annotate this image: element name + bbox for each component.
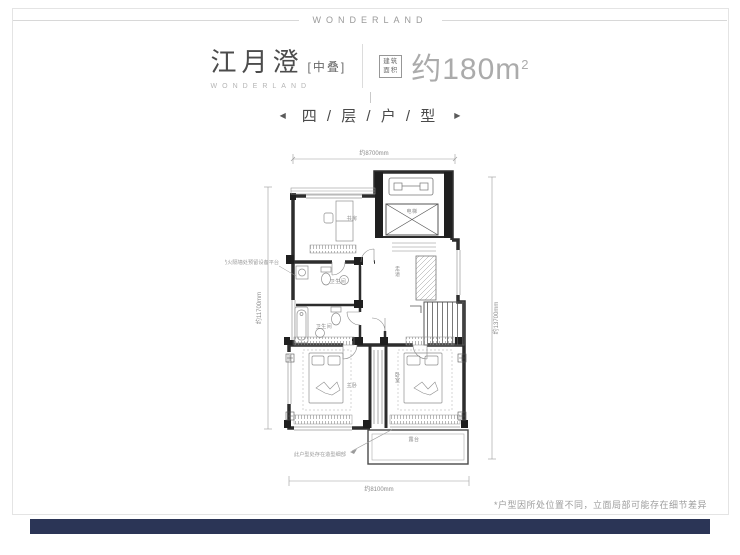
area-number: 约180m [411,53,521,86]
service-areas [392,243,464,345]
banner-line-right [442,20,728,21]
area-value: 约180m2 [411,44,529,88]
project-title-block: 江月澄 [中叠] WONDERLAND [211,42,347,90]
banner-line-left [13,20,299,21]
project-title-suffix: [中叠] [308,58,347,75]
annotation-left: 防火隔墙处预留设备平台 [225,258,279,266]
annotation-bottom-leader [352,429,393,451]
floor-plan: 约8700mm 约11700mm 约13700mm 约8100mm [225,140,510,500]
dim-top: 约8700mm [359,149,388,157]
dim-left: 约11700mm [255,292,263,324]
room-label-terrace: 露台 [408,436,419,443]
top-banner: WONDERLAND [13,15,727,25]
area-badge-line2: 面积 [383,66,398,75]
room-label-bedroom: 卧室 [394,371,400,383]
header-connector-line [370,92,371,103]
section-title-text: 四 / 层 / 户 / 型 [302,105,439,126]
annotation-bottom: 此户型处存在造型细部 [294,450,346,458]
elevator-shaft [386,178,438,235]
header: 江月澄 [中叠] WONDERLAND 建筑 面积 约180m2 [0,42,740,90]
footer-accent-bar [30,519,710,534]
room-label-elevator: 电梯 [406,208,417,215]
terrace [368,430,468,464]
door-openings [332,258,427,349]
dim-bottom: 约8100mm [364,485,393,493]
right-triangle-icon: ▶ [454,111,460,120]
area-badge: 建筑 面积 [379,55,402,78]
room-label-bath-upper: 卫生间 [330,278,347,285]
section-title: ◀ 四 / 层 / 户 / 型 ▶ [0,105,740,126]
header-divider [362,44,363,88]
area-badge-line1: 建筑 [383,57,398,66]
project-subtitle: WONDERLAND [211,83,347,90]
floor-plan-svg: 约8700mm 约11700mm 约13700mm 约8100mm [225,140,510,500]
disclaimer-text: *户型因所处位置不同，立面局部可能存在细节差异 [494,498,707,511]
left-triangle-icon: ◀ [280,111,286,120]
room-label-study: 书房 [346,215,357,222]
project-title: 江月澄 [211,42,304,79]
banner-brand-text: WONDERLAND [299,15,442,25]
room-label-master: 主卧 [346,382,357,389]
room-label-corridor: 走道 [394,266,400,278]
room-label-bath-lower: 卫生间 [316,323,333,330]
annotation-arrowhead [350,449,357,454]
area-superscript: 2 [521,57,529,72]
dim-right: 约13700mm [492,302,500,335]
